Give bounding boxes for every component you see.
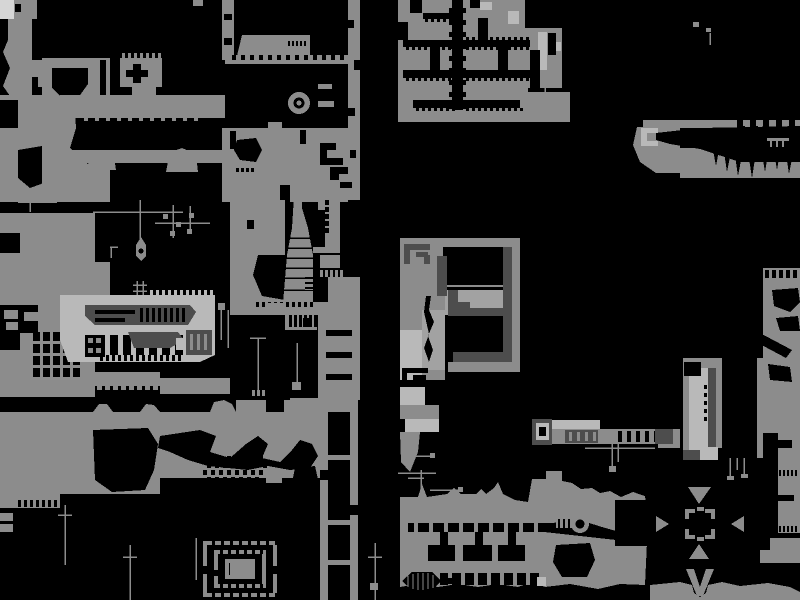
upper-right-cave: [633, 22, 800, 178]
carrier-ship: [60, 290, 215, 362]
upper-left-terrain: [0, 0, 230, 202]
ring-room: [225, 55, 348, 138]
game-map-screen: [0, 0, 800, 600]
p-shaped-facility: [400, 238, 520, 507]
world-map-canvas[interactable]: [0, 0, 800, 600]
lower-left-terrain: [0, 398, 320, 600]
room-grid-facility: [398, 0, 570, 122]
center-columns: [230, 180, 360, 400]
observation-tower: [683, 358, 763, 480]
compass-cursor: [656, 487, 744, 596]
freight-train: [532, 419, 680, 472]
spiral-maze: [203, 541, 278, 597]
